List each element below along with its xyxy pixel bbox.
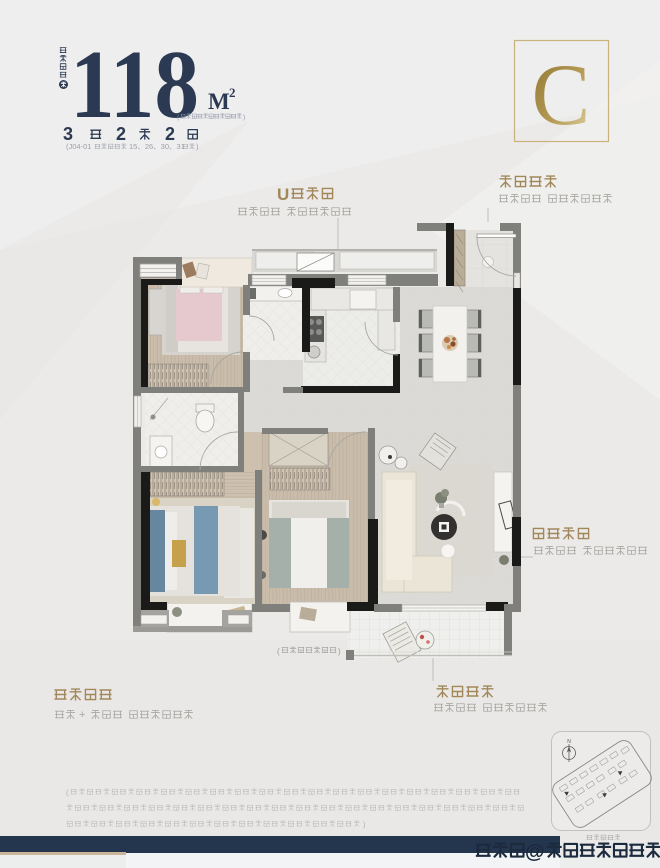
svg-text:M: M: [208, 89, 230, 114]
svg-text:): ): [338, 647, 341, 656]
svg-text:2: 2: [116, 124, 126, 144]
svg-text:+: +: [79, 709, 85, 721]
svg-text:118: 118: [70, 31, 199, 139]
svg-text:3: 3: [63, 124, 73, 144]
svg-text:(J04-01: (J04-01: [66, 142, 91, 151]
svg-text:U: U: [277, 185, 289, 204]
svg-text:(: (: [277, 647, 280, 656]
svg-text:2: 2: [165, 124, 175, 144]
svg-text:C: C: [532, 47, 591, 144]
svg-text:2: 2: [229, 85, 236, 100]
svg-text:@: @: [525, 841, 545, 863]
svg-text:): ): [243, 114, 245, 121]
svg-text:N: N: [567, 739, 571, 745]
svg-text:15、26、30、31: 15、26、30、31: [129, 142, 185, 151]
